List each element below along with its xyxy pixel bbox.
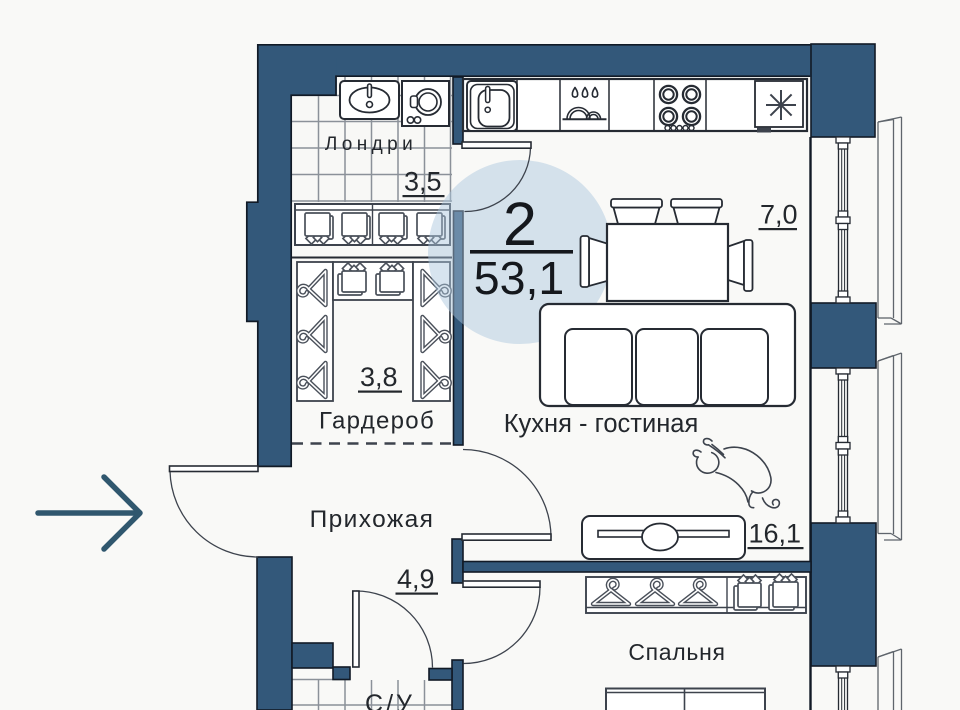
svg-text:С/У: С/У xyxy=(365,690,415,710)
svg-text:4,9: 4,9 xyxy=(397,564,435,594)
svg-text:3,5: 3,5 xyxy=(404,167,442,197)
svg-text:3,8: 3,8 xyxy=(360,362,398,392)
svg-text:53,1: 53,1 xyxy=(474,252,565,304)
svg-text:Спальня: Спальня xyxy=(628,639,725,665)
svg-text:7,0: 7,0 xyxy=(760,200,798,230)
svg-text:2: 2 xyxy=(503,190,537,258)
svg-text:16,1: 16,1 xyxy=(749,519,802,549)
svg-text:Прихожая: Прихожая xyxy=(310,506,435,533)
svg-text:Кухня - гостиная: Кухня - гостиная xyxy=(504,410,699,438)
svg-text:Гардероб: Гардероб xyxy=(319,408,435,435)
svg-text:Лондри: Лондри xyxy=(325,134,417,155)
